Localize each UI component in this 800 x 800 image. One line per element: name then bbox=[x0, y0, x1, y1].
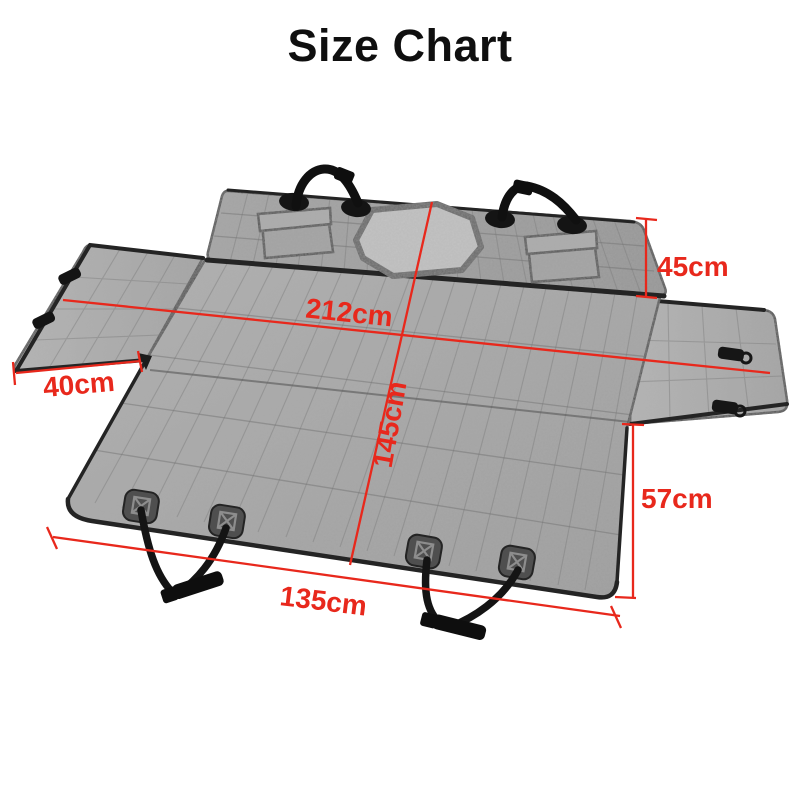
dim-label-40: 40cm bbox=[42, 366, 116, 403]
dim-label-45: 45cm bbox=[657, 251, 729, 282]
product-size-diagram: 212cm 145cm 45cm 40cm 57cm bbox=[0, 0, 800, 800]
size-chart-page: Size Chart bbox=[0, 0, 800, 800]
right-pocket bbox=[525, 231, 599, 282]
dim-label-57: 57cm bbox=[641, 483, 713, 514]
left-pocket bbox=[258, 208, 333, 258]
dimension-rear-drop: 57cm bbox=[615, 424, 713, 598]
dim-label-135: 135cm bbox=[278, 580, 368, 621]
